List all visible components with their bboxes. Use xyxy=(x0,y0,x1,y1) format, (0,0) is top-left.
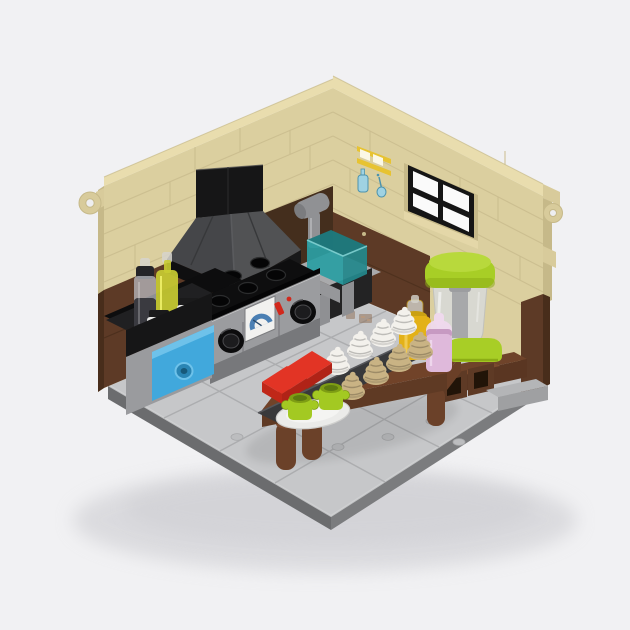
stove-knob xyxy=(218,329,244,353)
hood-chimney xyxy=(196,165,263,218)
lego-kitchen-photo: LEGO kitchen interior diorama xyxy=(0,0,630,630)
sink-leg xyxy=(342,281,354,317)
table-leg xyxy=(427,388,445,426)
scene-svg: LEGO kitchen interior diorama xyxy=(0,0,630,630)
blender-base xyxy=(446,338,502,362)
blender-shaft xyxy=(452,288,468,338)
stove-knob xyxy=(290,300,316,324)
